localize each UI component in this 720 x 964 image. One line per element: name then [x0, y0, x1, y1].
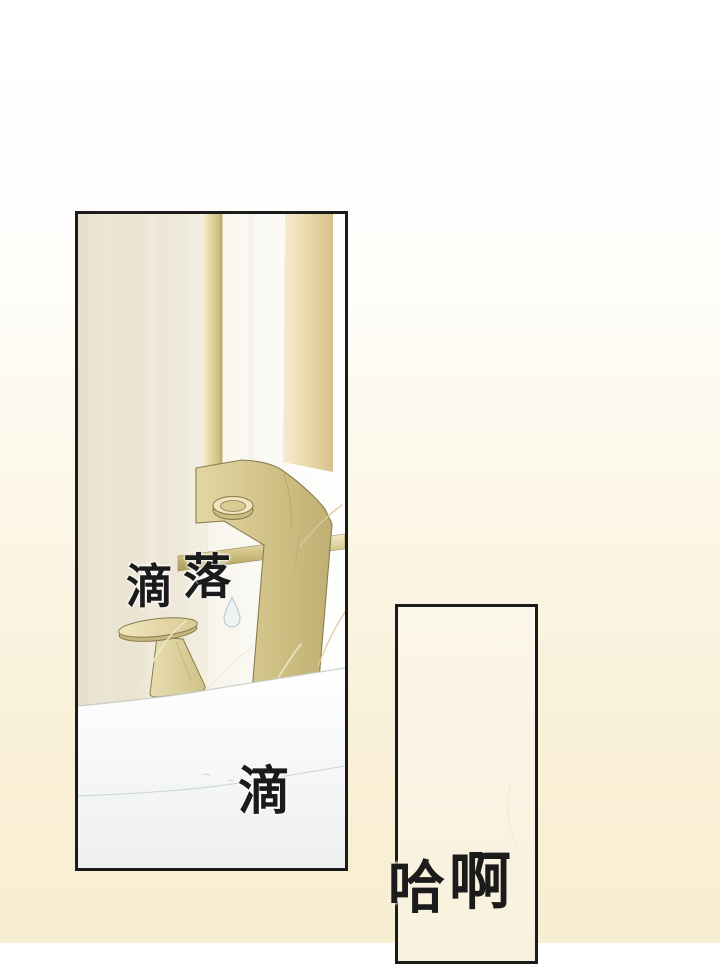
sfx-drip: 滴	[238, 766, 290, 818]
faucet-aerator	[213, 497, 253, 520]
sfx-sigh-char1: 哈	[388, 860, 445, 917]
wall-panel-band	[283, 214, 333, 472]
panel-bathroom-faucet	[75, 211, 348, 871]
sfx-sigh-char2: 啊	[449, 852, 511, 914]
sfx-drip-fall-char2: 落	[183, 554, 231, 602]
comic-page: { "page": { "kind": "webtoon comic page"…	[0, 0, 720, 943]
sfx-drip-fall-char1: 滴	[126, 563, 173, 610]
faucet-scene-illustration	[78, 214, 345, 868]
